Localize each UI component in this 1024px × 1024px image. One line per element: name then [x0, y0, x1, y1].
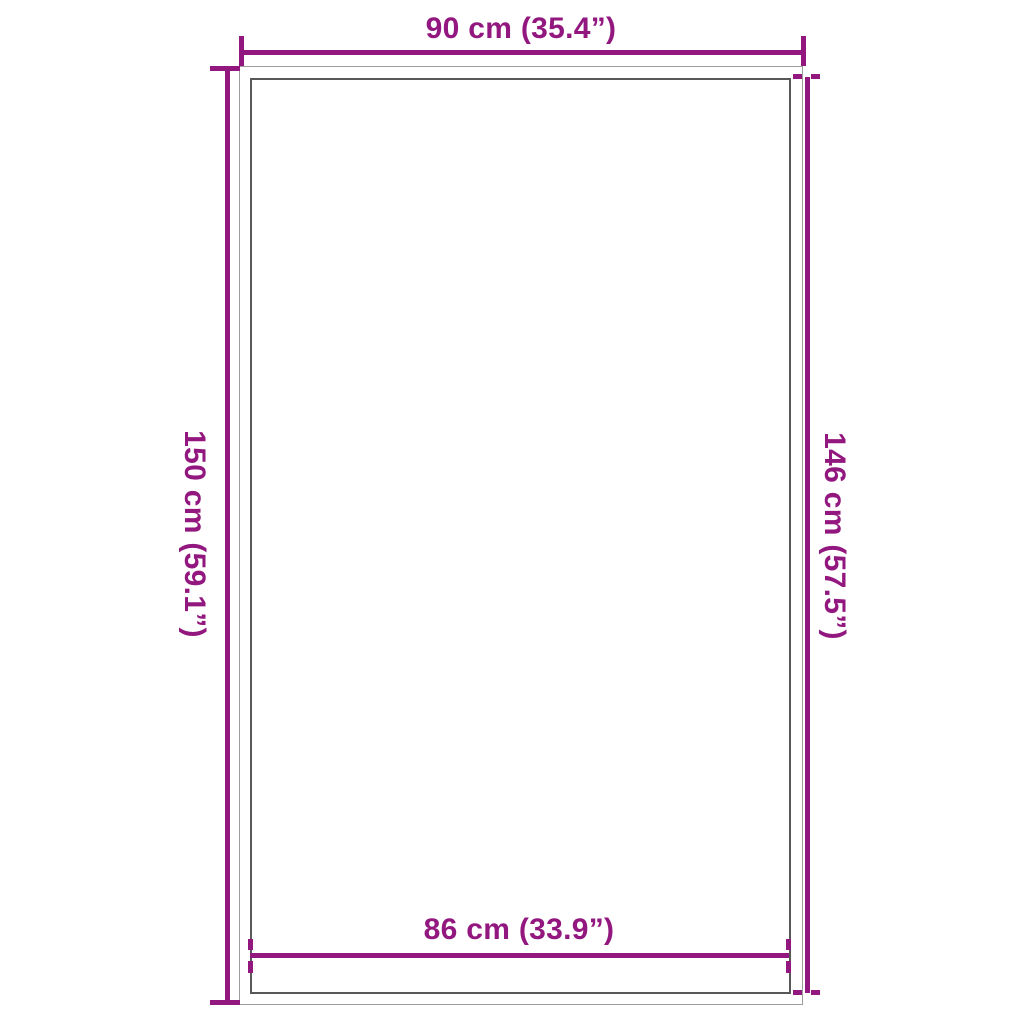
right-dimension-line: [805, 77, 810, 993]
bottom-dimension-tick-left-dash: [248, 961, 253, 973]
top-dimension-label: 90 cm (35.4”): [426, 14, 617, 44]
right-dimension-label: 146 cm (57.5”): [819, 432, 849, 640]
right-dimension-tick-bottom-dash: [793, 990, 802, 995]
dimension-diagram: 90 cm (35.4”) 150 cm (59.1”) 146 cm (57.…: [0, 0, 1024, 1024]
left-dimension-line: [225, 68, 230, 1004]
bottom-dimension-tick-left-dash: [248, 939, 253, 950]
top-dimension-tick-right: [801, 36, 806, 66]
right-dimension-tick-top-dash: [793, 74, 802, 79]
top-dimension-tick-left: [239, 36, 244, 66]
left-dimension-tick-top: [210, 66, 240, 71]
bottom-dimension-tick-right-dash: [786, 939, 791, 950]
right-dimension-tick-top-dash: [811, 74, 820, 79]
right-dimension-tick-bottom-dash: [811, 990, 820, 995]
bottom-dimension-tick-right-dash: [786, 961, 791, 973]
left-dimension-tick-bottom: [210, 1000, 240, 1005]
left-dimension-label: 150 cm (59.1”): [179, 430, 209, 638]
top-dimension-line: [241, 50, 803, 55]
bottom-dimension-label: 86 cm (33.9”): [424, 915, 615, 945]
inner-rectangle-outline: [250, 78, 791, 994]
bottom-dimension-line: [250, 953, 789, 958]
